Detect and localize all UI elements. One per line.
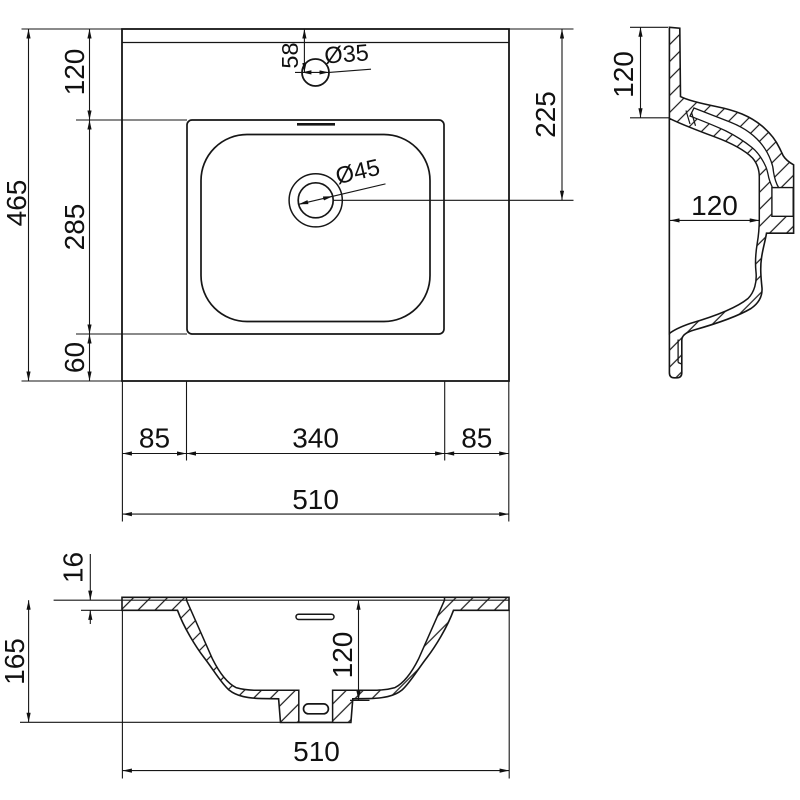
svg-text:16: 16: [58, 552, 89, 583]
svg-text:120: 120: [691, 190, 738, 221]
svg-text:Ø45: Ø45: [333, 154, 382, 189]
svg-text:85: 85: [139, 423, 170, 454]
svg-text:Ø35: Ø35: [323, 39, 369, 68]
svg-text:85: 85: [461, 423, 492, 454]
svg-text:120: 120: [59, 49, 90, 96]
svg-text:465: 465: [1, 180, 32, 227]
svg-text:510: 510: [293, 736, 340, 767]
svg-text:58: 58: [277, 42, 303, 68]
svg-text:225: 225: [530, 91, 561, 138]
svg-text:165: 165: [0, 638, 30, 685]
svg-text:340: 340: [292, 423, 339, 454]
svg-text:285: 285: [59, 204, 90, 251]
svg-text:510: 510: [292, 484, 339, 515]
svg-text:60: 60: [59, 342, 90, 373]
svg-text:120: 120: [327, 632, 358, 679]
svg-text:120: 120: [608, 51, 639, 98]
